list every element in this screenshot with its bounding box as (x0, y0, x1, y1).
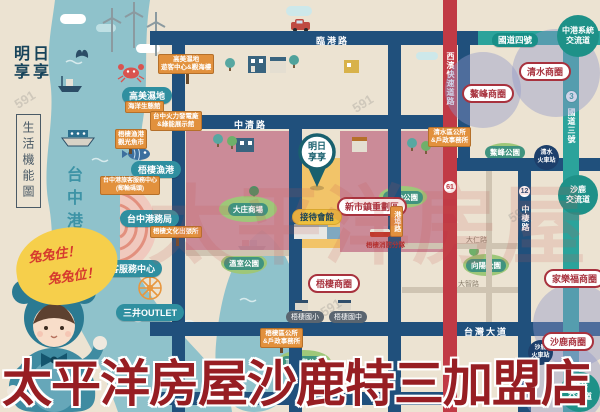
road-label-zhongqing: 中清路 (234, 118, 267, 131)
sign-line: 觀光魚市 (118, 139, 144, 147)
map-canvas: ⚓ 大庄商場 運動公園 溫室公園 頂魚寮公園 向陽公園 鰲峰公園 大仁路 大智路… (0, 0, 600, 412)
road-label-zhongqi: 中棲路 (520, 205, 531, 232)
sign-line: 梧棲文化出張所 (153, 228, 199, 236)
sign-line: 海洋生態館 (128, 103, 161, 111)
reception-building-icon (294, 224, 328, 239)
street-label: 大仁路 (466, 235, 487, 245)
interchange-line: 中港系統 (562, 26, 594, 36)
sign-power-plant: 台中火力發電廠 &綠能展示館 (150, 111, 202, 131)
school-label: 梧棲國小 (286, 311, 324, 323)
sign-fish-market: 梧棲漁港 觀光魚市 (115, 129, 147, 149)
minor-street (186, 250, 289, 256)
sign-line: (郵輪碼頭) (103, 186, 157, 194)
park-label: 大庄商場 (228, 203, 268, 216)
district-aofeng: 鰲峰商圈 (462, 84, 514, 103)
project-pin: 明日 享享 (297, 133, 337, 191)
fire-station-label: 梧棲消防分隊 (366, 239, 405, 249)
school-building-icon (338, 300, 351, 310)
reception-glass-icon (327, 227, 340, 239)
road-label-highway4: 國道四號 (492, 33, 538, 47)
place-mitsui-outlet: 三井OUTLET (116, 304, 184, 321)
pin-logo-line2: 享享 (308, 151, 326, 162)
sign-wuqi-heritage: 梧棲文化出張所 (150, 226, 202, 238)
reception-hall-pill: 接待會館 (292, 209, 342, 225)
road-label-taiwan-blvd: 台灣大道 (464, 325, 508, 338)
sign-line: 梧棲區公所 (263, 330, 300, 338)
sign-post (176, 237, 179, 246)
map-legend-title: 生活機能圖 (16, 114, 41, 208)
sign-line: 梧棲漁港 (118, 131, 144, 139)
store-title: 太平洋房屋沙鹿特三加盟店 (2, 344, 590, 412)
sign-line: 台中港旅客服務中心 (103, 178, 157, 186)
sign-qingshui-office: 清水區公所 &戶政事務所 (428, 127, 471, 147)
sign-line: &戶政事務所 (431, 137, 468, 145)
park-oval: 大庄商場 (219, 196, 277, 222)
sign-cruise-terminal: 台中港旅客服務中心 (郵輪碼頭) (100, 176, 160, 195)
sign-gaomei-center: 高美濕地 遊客中心&觀海樓 (158, 54, 214, 74)
sign-line: 高美濕地 (161, 56, 211, 64)
station-qingshui: 清水 火車站 (534, 145, 559, 170)
street-label: 大智路 (458, 279, 479, 289)
road-label-lingang: 臨港路 (316, 34, 349, 47)
sign-post (186, 74, 189, 84)
district-qingshui: 清水商圈 (519, 62, 571, 81)
badge-61: 61 (443, 180, 457, 194)
station-line: 清水 (540, 150, 552, 157)
district-wuqi: 梧棲商圈 (308, 274, 360, 293)
school-label: 梧棲國中 (329, 311, 367, 323)
fire-truck-icon (370, 229, 390, 237)
brand-logo: 明日 享享 (10, 46, 56, 82)
sign-line: 遊客中心&觀海樓 (161, 64, 211, 72)
school-building-icon (295, 300, 308, 310)
pin-logo-line1: 明日 (308, 141, 326, 151)
bubble-line2: 兔兔位！ (46, 262, 100, 288)
sign-line: 清水區公所 (431, 129, 468, 137)
brand-logo-line2: 享享 (10, 64, 56, 82)
place-port-bureau: 台中港務局 (120, 210, 179, 227)
sign-line: &綠能展示館 (153, 121, 199, 129)
minor-street (402, 243, 518, 249)
district-carrefour: 家樂福商圈 (544, 269, 600, 288)
interchange-zhonggang: 中港系統 交流道 (557, 15, 599, 57)
badge-12: 12 (518, 185, 531, 198)
brand-logo-line1: 明日 (10, 46, 56, 64)
interchange-line: 沙鹿 (570, 185, 586, 195)
interchange-line: 交流道 (566, 36, 590, 46)
sign-line: 台中火力發電廠 (153, 113, 199, 121)
road-label-gangbu: 港埠路 (390, 206, 403, 237)
interchange-shalu: 沙鹿 交流道 (558, 175, 598, 215)
tree-icons (213, 55, 479, 259)
interchange-line: 交流道 (566, 195, 590, 205)
park-label: 溫室公園 (224, 257, 264, 270)
bubble-line1: 兔兔住！ (27, 240, 81, 266)
station-line: 火車站 (537, 158, 555, 165)
